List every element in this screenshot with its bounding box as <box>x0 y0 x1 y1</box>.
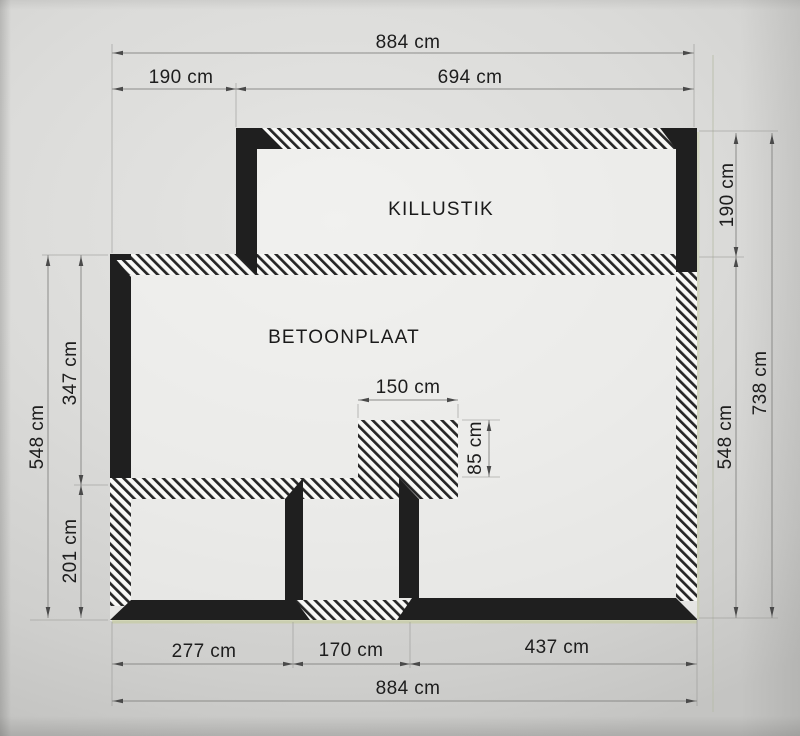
wall-bottom-left <box>110 600 310 620</box>
dim-bottom-right-section: 437 cm <box>525 637 590 658</box>
room-label-betoonplaat: BETOONPLAAT <box>268 327 420 348</box>
dim-bottom-overall: 884 cm <box>376 678 441 699</box>
dim-top-right-span: 694 cm <box>438 67 503 88</box>
dim-right-lower: 548 cm <box>715 405 736 470</box>
wall-left-upper <box>110 254 131 478</box>
dim-bottom-left-room: 277 cm <box>172 641 237 662</box>
dim-bottom-opening: 170 cm <box>319 640 384 661</box>
wall-middle-hatched <box>110 254 676 275</box>
dim-notch-width: 150 cm <box>376 377 441 398</box>
highlight-under-bottom-wall <box>112 620 697 624</box>
dim-left-overall: 548 cm <box>27 405 48 470</box>
dim-right-overall: 738 cm <box>750 351 771 416</box>
room-label-killustik: KILLUSTIK <box>388 199 494 220</box>
dim-top-left-offset: 190 cm <box>149 67 214 88</box>
floor-plan-drawing: 884 cm 190 cm 694 cm 277 cm 170 cm 437 c… <box>0 0 800 736</box>
dim-top-overall: 884 cm <box>376 32 441 53</box>
dim-right-upper: 190 cm <box>717 163 738 228</box>
dim-notch-depth: 85 cm <box>465 421 486 475</box>
wall-corridor-left <box>285 478 303 600</box>
highlight-right-wall-edge <box>697 132 700 619</box>
dim-left-upper: 347 cm <box>60 341 81 406</box>
floor-plan-photo: 884 cm 190 cm 694 cm 277 cm 170 cm 437 c… <box>0 0 800 736</box>
wall-bottom-right <box>397 598 697 620</box>
dim-left-lower: 201 cm <box>60 519 81 584</box>
wall-right-hatched <box>676 270 697 601</box>
wall-corridor-right <box>399 478 419 598</box>
wall-top-hatched <box>236 128 697 149</box>
